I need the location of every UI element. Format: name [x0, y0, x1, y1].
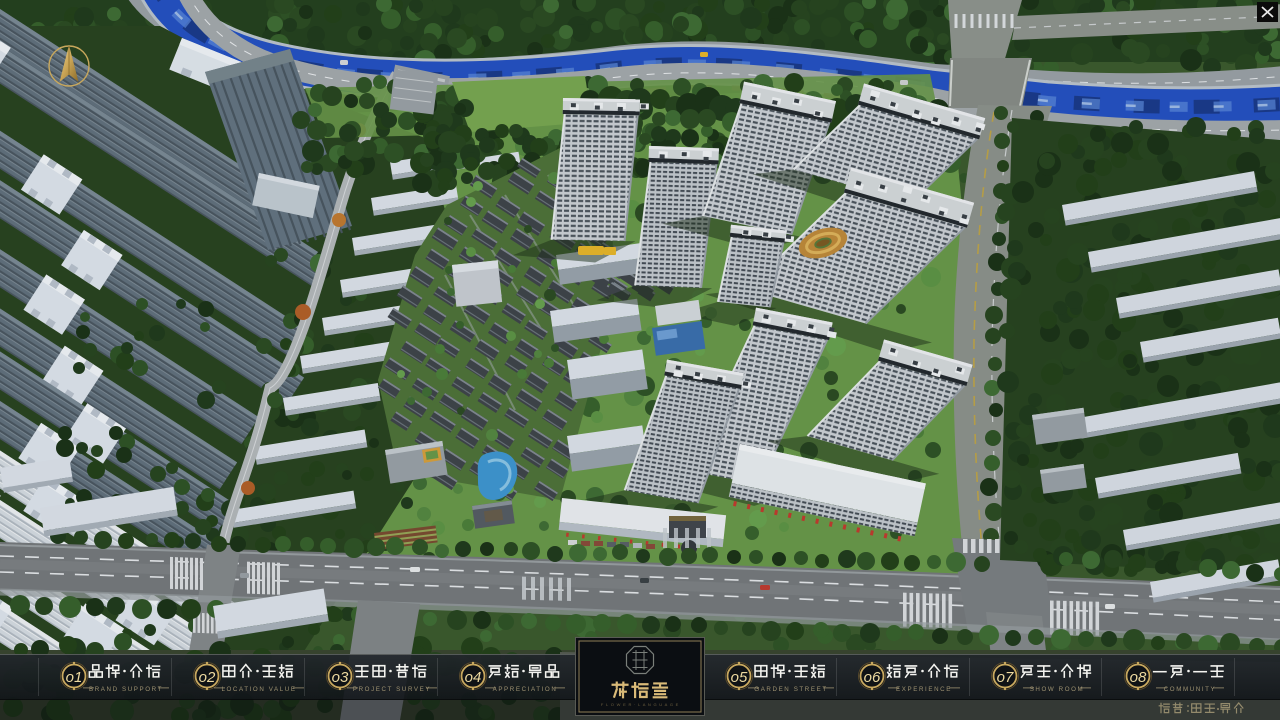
svg-text:F L O W E R · L A N G U A G E: F L O W E R · L A N G U A G E	[601, 702, 679, 707]
svg-text:o7: o7	[997, 669, 1014, 686]
svg-text:o1: o1	[66, 669, 83, 686]
svg-text:o2: o2	[199, 669, 216, 686]
svg-text:o6: o6	[864, 669, 881, 686]
svg-text:o4: o4	[465, 669, 482, 686]
svg-text:EXPERIENCE: EXPERIENCE	[896, 686, 952, 693]
svg-text:COMMUNITY: COMMUNITY	[1164, 686, 1217, 693]
svg-text:LOCATION VALUE: LOCATION VALUE	[221, 686, 296, 693]
svg-text:o8: o8	[1130, 669, 1147, 686]
svg-text:o5: o5	[731, 669, 748, 686]
svg-text:SHOW ROOM: SHOW ROOM	[1030, 686, 1085, 693]
svg-text:PROJECT SURVEY: PROJECT SURVEY	[353, 686, 431, 693]
svg-text:BRAND SUPPORT: BRAND SUPPORT	[89, 686, 163, 693]
svg-text:GARDEN STREET: GARDEN STREET	[754, 686, 827, 693]
svg-text:o3: o3	[332, 669, 349, 686]
svg-text:APPRECIATION: APPRECIATION	[493, 686, 558, 693]
